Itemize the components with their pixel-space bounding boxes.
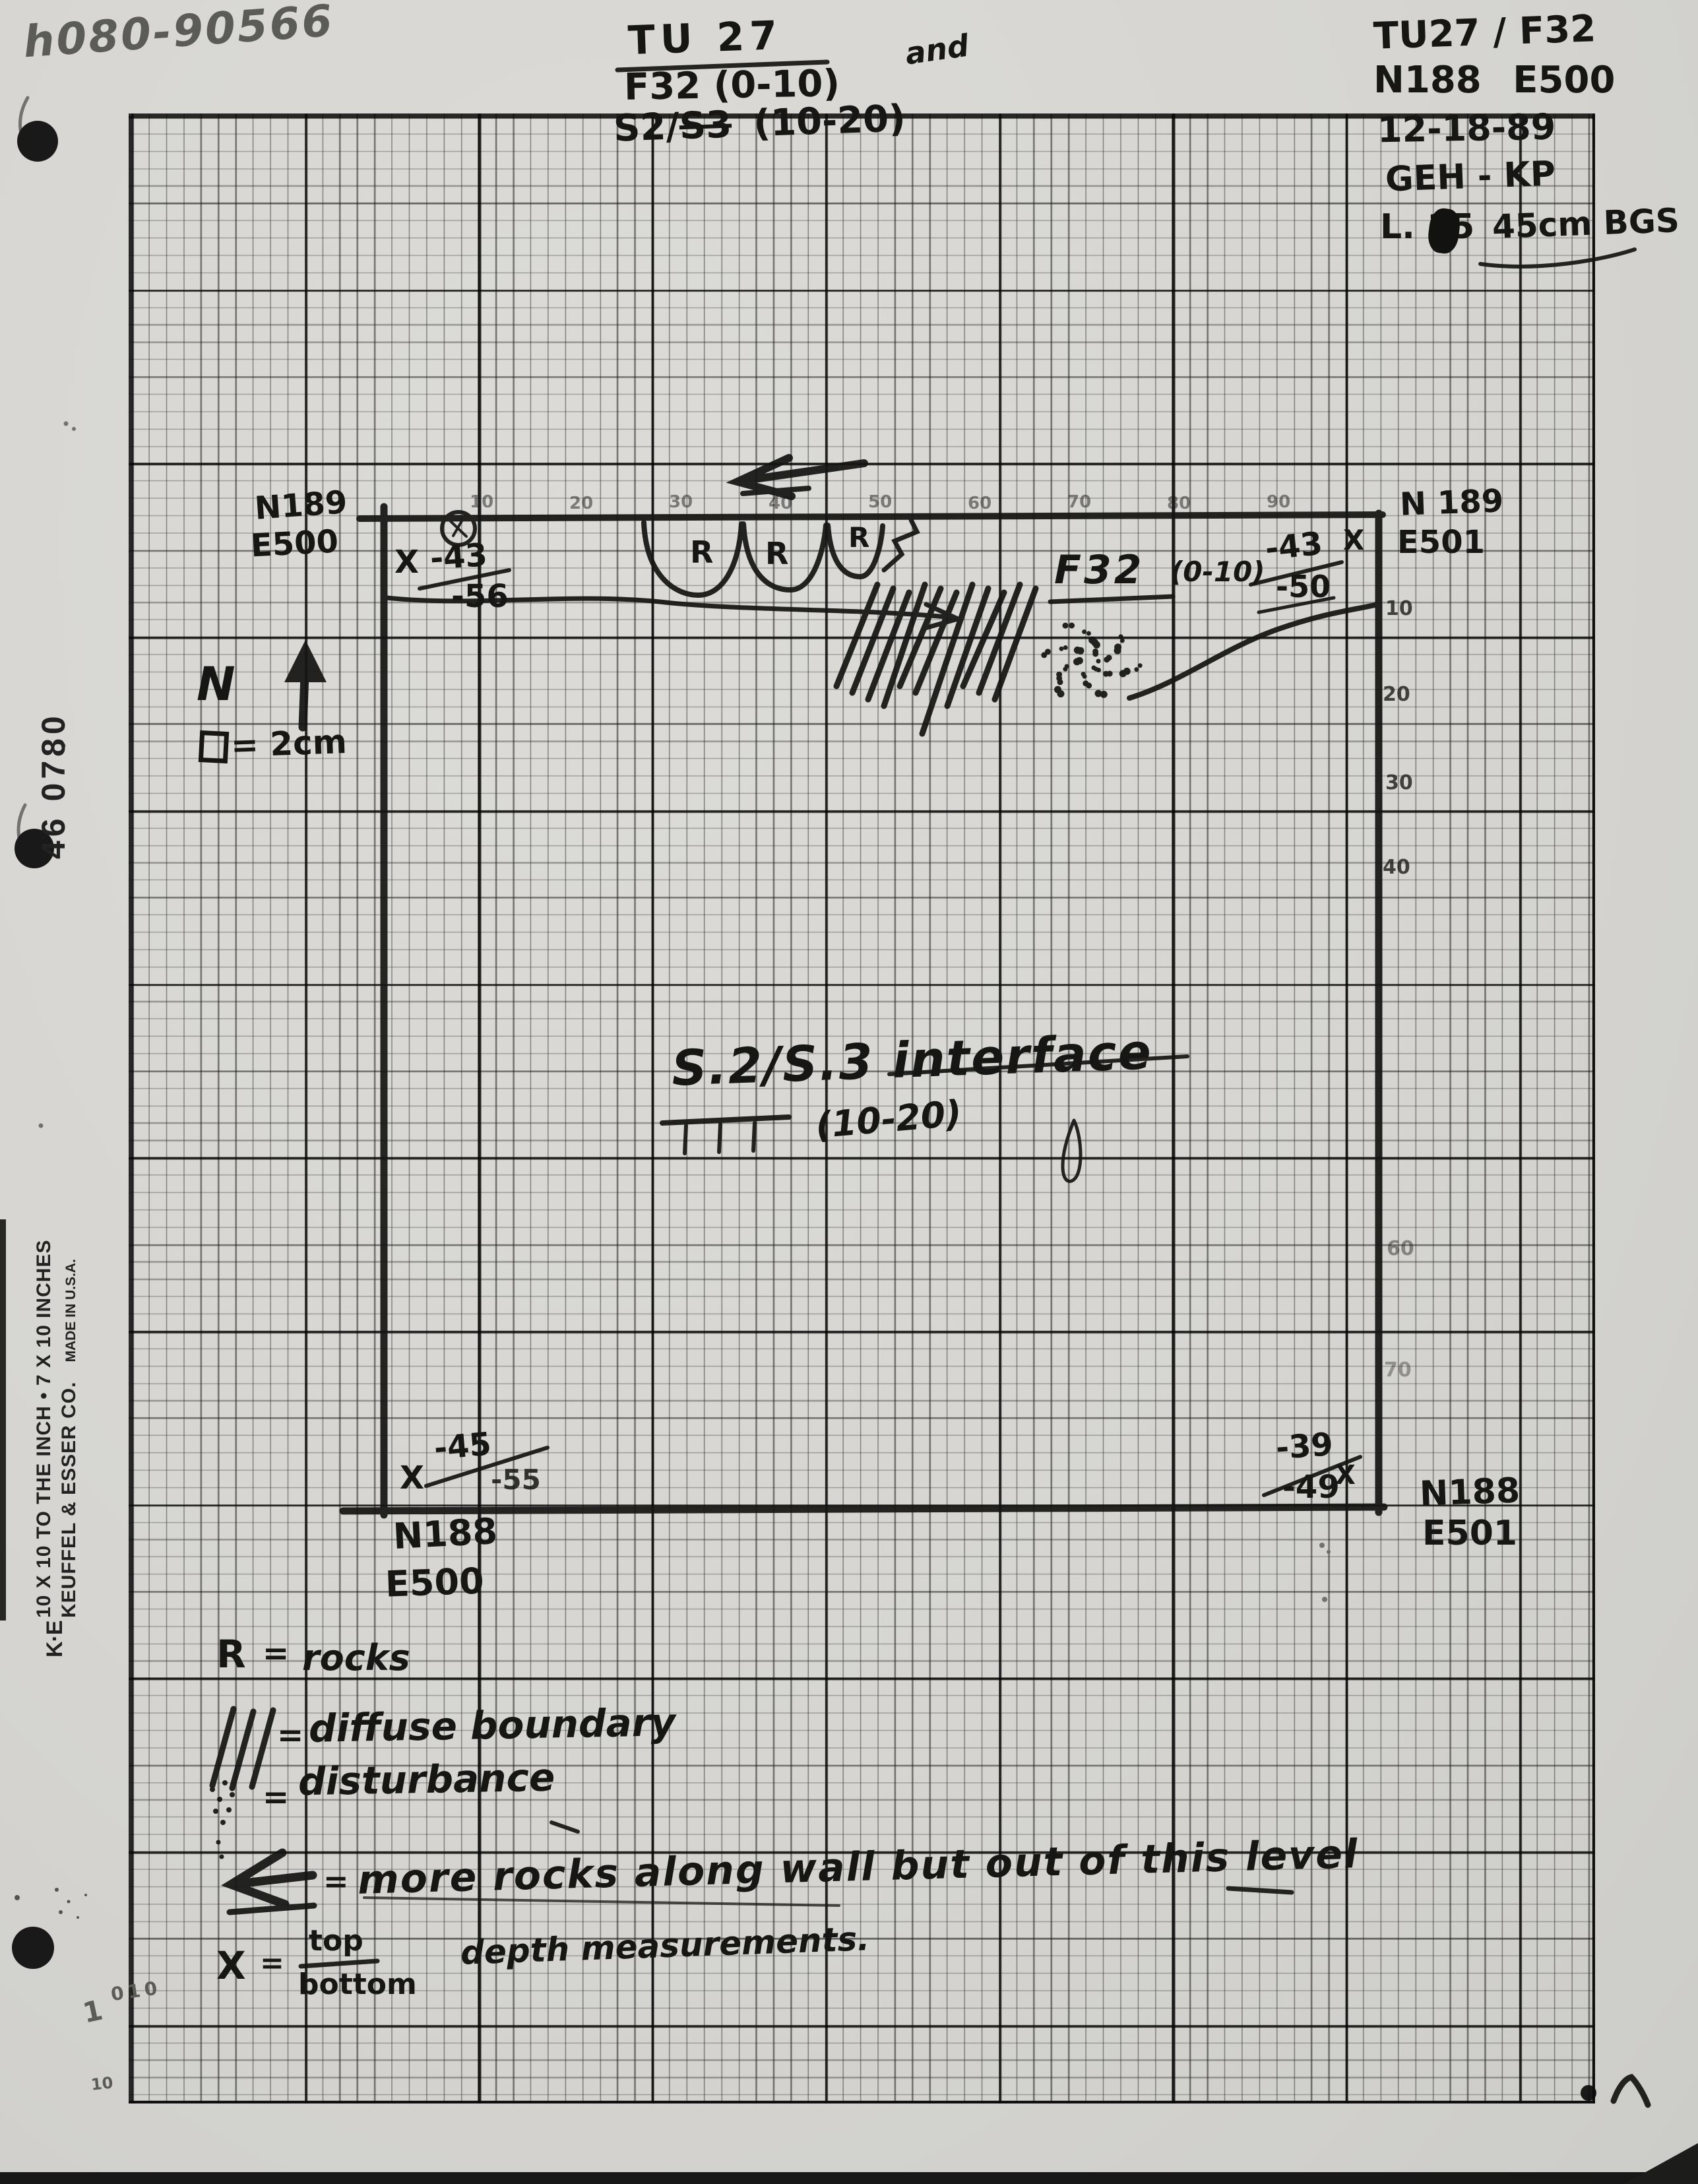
ke-logo: K·E [42,1621,68,1657]
hole-punches [12,121,58,1969]
ne-depth-bottom: -50 [1276,571,1331,602]
paper-brand-line2: KEUFFEL & ESSER CO. [58,1382,80,1619]
strata-prefix: S2/ [613,105,680,150]
interface-underline [662,1117,789,1123]
depth-note-underline [1480,249,1635,267]
nw-coord-e: E500 [250,526,339,562]
legend-arrow-eq: = [323,1866,349,1896]
f32-underline [1050,596,1173,602]
se-depth-bottom: -49 [1282,1471,1340,1503]
interface-underline-tics [685,1123,755,1153]
page-number-mark-stroke [1614,2077,1648,2105]
top-edge-mark: 10 [470,494,493,511]
interface-f-loop [1063,1120,1081,1181]
north-label: N [197,661,236,707]
legend-rocks-text: rocks [302,1640,410,1676]
north-arrow-head [284,640,327,682]
header-unit-feature: TU27 / F32 [1373,11,1596,55]
se-coord-n: N188 [1419,1473,1521,1511]
header-depth-bgs: 45cm BGS [1492,204,1680,243]
paper-stock-number: 46 0780 [34,712,73,859]
legend-x-eq: = [260,1949,284,1978]
ne-coord-e: E501 [1397,527,1485,558]
legend-rocks-symbol: R [216,1635,246,1673]
right-edge-mark: 40 [1383,858,1410,878]
right-edge-mark: 70 [1384,1361,1412,1380]
feature-range: (0-10) [1170,558,1265,586]
sw-coord-e: E500 [385,1563,484,1602]
header-grid-coord: N188 E500 [1373,62,1615,99]
circled-rock-scribble [451,520,466,536]
strata-title-line: S2/S3 (10-20) [613,100,906,147]
strata-struck: S3 [679,103,733,148]
grid-corner-dot [1581,2085,1596,2101]
right-edge-mark: 10 [1385,599,1413,619]
scale-text: = 2cm [230,725,347,762]
legend-diffuse-text: diffuse boundary [309,1703,676,1748]
se-depth-top: -39 [1274,1429,1334,1464]
pencil-mark-c: 10 [90,2074,114,2092]
feature-label: F32 [1054,550,1144,590]
legend-rocks-eq: = [263,1638,289,1669]
top-edge-mark: 60 [968,495,991,512]
ne-coord-n: N 189 [1399,485,1504,520]
rock-label-1: R [690,537,713,567]
legend-fraction-top: top [309,1927,363,1956]
conjunction-and: and [903,30,970,69]
legend-arrow-icon-base [230,1906,314,1912]
top-edge-mark: 30 [669,494,693,511]
header-date: 12-18-89 [1377,110,1556,148]
ne-depth-top: -43 [1264,528,1324,565]
feature-boundary-curve [1129,604,1377,698]
legend-level-tail [1228,1888,1292,1892]
hole-punch-speckles [15,1888,87,1919]
sw-coord-n: N188 [393,1514,499,1555]
se-x-mark: X [1335,1462,1356,1489]
rock-label-2: R [765,538,788,569]
paper-made-in: MADE IN U.S.A. [63,1259,79,1362]
legend-x-symbol: X [216,1946,246,1985]
nw-depth-bottom: -56 [451,581,509,612]
legend-slashes-icon [212,1709,273,1788]
sw-depth-top: -45 [433,1428,493,1464]
paper-brand-line1: 10 X 10 TO THE INCH • 7 X 10 INCHES [33,1240,55,1618]
top-edge-mark: 50 [868,494,892,511]
scan-edge-left-strip [0,1219,6,1621]
se-coord-e: E501 [1422,1516,1517,1551]
scan-edge-bottom [0,2172,1698,2184]
legend-disturbance-eq: = [263,1782,289,1813]
unit-wall-south [343,1507,1384,1511]
strata-range: (10-20) [753,97,906,145]
right-edge-mark: 30 [1385,773,1413,793]
top-edge-mark: 70 [1067,494,1091,511]
unit-wall-north [360,515,1383,519]
ne-x-mark: X [1343,527,1364,554]
top-edge-mark: 90 [1267,494,1290,511]
top-edge-mark: 40 [769,495,792,512]
rock-label-3: R [848,524,869,552]
disturbance-stipple-patch [1041,623,1142,698]
legend-stipple-icon [210,1780,235,1859]
scanned-field-drawing-page: h080-90566 TU 27 F32 (0-10) and S2/S3 (1… [0,0,1698,2184]
legend-fraction-bar [301,1961,377,1966]
scale-square-symbol [199,730,229,763]
nw-coord-n: N189 [253,486,348,525]
unit-title: TU 27 [627,16,783,61]
nw-depth-top: -43 [429,539,488,575]
disturbance-word-tail [551,1822,578,1832]
hole-punch-top [17,121,58,162]
top-edge-mark: 80 [1167,495,1191,512]
right-edge-mark: 20 [1383,685,1410,705]
diffuse-boundary-hatching [836,585,1036,734]
hole-punch-bottom [12,1927,54,1969]
right-edge-mark: 60 [1387,1239,1414,1259]
nw-x-mark: X [394,546,419,578]
legend-fraction-bottom: bottom [298,1970,417,1999]
legend-disturbance-text: disturbance [298,1758,555,1801]
header-crew-initials: GEH - KP [1385,157,1556,197]
legend-diffuse-eq: = [277,1719,303,1751]
header-level: L. 15 [1380,210,1474,244]
sw-x-mark: X [400,1462,424,1494]
top-edge-mark: 20 [569,495,593,512]
rock-zigzag [884,520,917,570]
sw-depth-bottom: -55 [491,1466,541,1494]
paper-brand-block: 10 X 10 TO THE INCH • 7 X 10 INCHES KEUF… [33,1240,80,1618]
